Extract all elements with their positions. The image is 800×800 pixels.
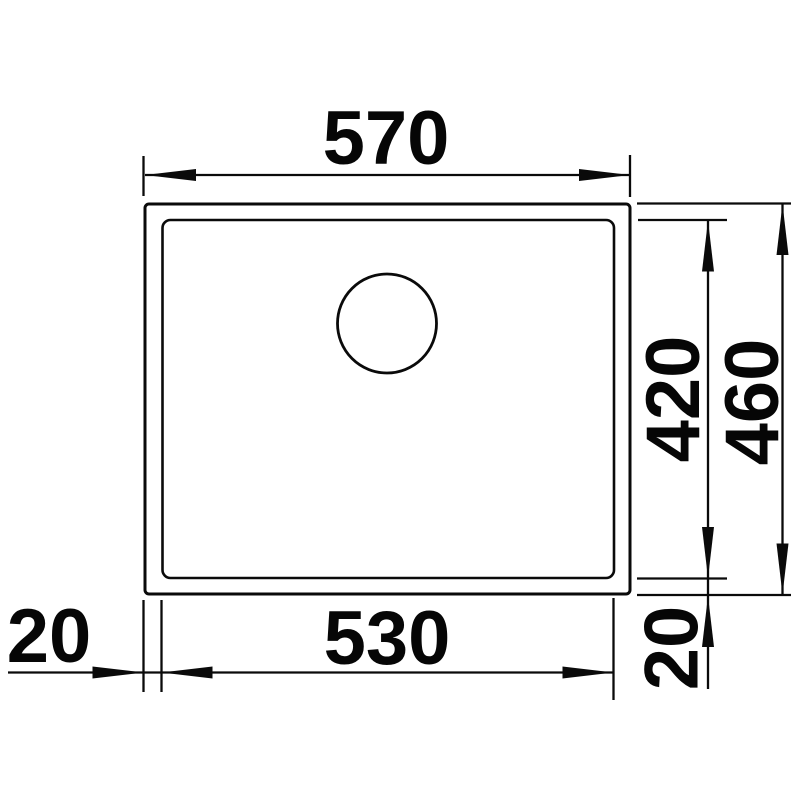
- svg-text:460: 460: [710, 339, 795, 466]
- svg-text:420: 420: [631, 336, 716, 463]
- svg-text:20: 20: [7, 594, 92, 679]
- svg-text:570: 570: [323, 96, 450, 181]
- svg-text:530: 530: [324, 596, 451, 681]
- svg-text:20: 20: [630, 606, 715, 691]
